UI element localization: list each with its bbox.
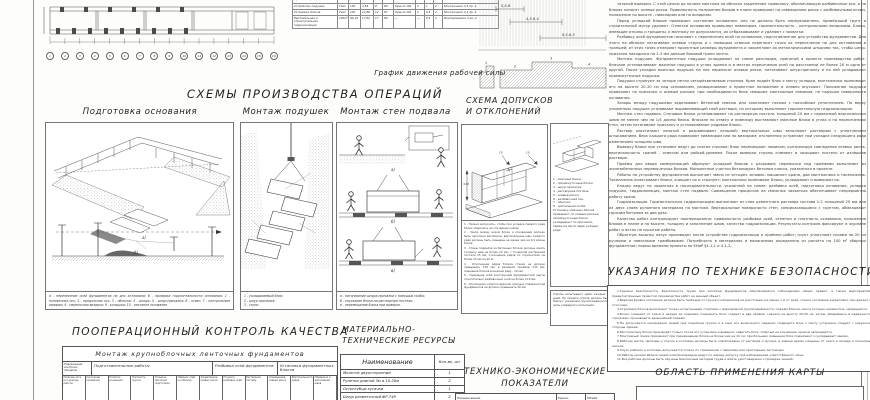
quality-table-title: Монтаж крупноблочных ленточных фундамент…: [62, 346, 338, 362]
quality-subcolumns-item: Вертикальность рядов: [291, 376, 314, 400]
technology-instructions-text-item: Подушки стропуют за четыре петли четырёх…: [609, 79, 866, 101]
tolerances-title: СХЕМА ДОПУСКОВ И ОТКЛОНЕНИЙ: [466, 95, 556, 117]
plan-axis-circles-item: 12: [210, 52, 218, 60]
quality-table: Монтаж крупноблочных ленточных фундамент…: [62, 346, 338, 400]
quality-subcolumns-item: Состояние основания: [86, 376, 109, 400]
technology-instructions-text-item: Выверку блока при установке ведут до сня…: [609, 145, 866, 162]
table-row: Молоток двухсторонний1: [341, 370, 465, 378]
tolerance-dim-3: 10: [499, 151, 503, 155]
tolerances-drawing: ±10 15 10: [462, 125, 545, 220]
table-cell: 100м²: [338, 16, 349, 29]
quality-subcolumns-item: Толщина песчаной подготовки: [154, 376, 177, 400]
plan-axis-circles-item: 9: [165, 52, 173, 60]
section-mark-1: 1: [485, 61, 487, 65]
table-row: Острогубцы кусачки1: [341, 385, 465, 393]
block-legend-list-item: Установку маячных блоков проверяют по ос…: [553, 209, 606, 232]
plan-axis-circles-item: 1: [46, 52, 54, 60]
technology-instructions-text-item: Раствор расстилают лопатой и разравниваю…: [609, 129, 866, 146]
panel1-caption: а - перенесение осей фундаментов на дно …: [46, 291, 233, 309]
plan-axis-circles-item: 13: [225, 52, 233, 60]
tech-econ-col-2: Едини-: [557, 394, 586, 400]
quality-subcolumns-item: Перевязка и заполнение швов: [314, 376, 337, 400]
plan-axis-circles-item: 2: [61, 52, 69, 60]
tolerances-notes-item: 6 - Отклонение отметок верхних опорных п…: [464, 283, 545, 290]
dim-label-2: 4,5-6,4: [526, 17, 539, 21]
tech-econ-table-partial: Наименование Едини- Объём: [455, 393, 615, 400]
scene-c-label: в): [391, 268, 395, 273]
tolerances-title-line1: СХЕМА ДОПУСКОВ: [466, 95, 556, 106]
table-cell: Вертикальная и горизонтальная гидроизоля…: [293, 16, 338, 29]
application-title: ОБЛАСТЬ ПРИМЕНЕНИЯ КАРТЫ: [630, 368, 850, 378]
technology-instructions-text: тальной выверки. С этой целью до начала …: [609, 2, 866, 260]
resources-col-qty: Кол-во, шт: [435, 355, 465, 370]
tolerances-notes-item: 1 - Нельзя допускать, чтобы при укладке …: [464, 223, 545, 230]
panel-tolerances: ±10 15 10 1 - Нельзя допускать, чтобы пр…: [461, 124, 548, 314]
quality-group-3: Установка фундаментных блоков: [278, 362, 337, 375]
table-row: Вертикальная и горизонтальная гидроизоля…: [293, 16, 499, 29]
technology-instructions-text-item: Гидроизоляция. Горизонтальную гидроизоля…: [609, 200, 866, 217]
table-cell: 1: [435, 385, 465, 393]
scene-b-label: б): [391, 219, 395, 224]
tech-econ-col-3: Объём: [586, 394, 614, 400]
table-row: Рулетки длиной 3м и 10-20м2: [341, 377, 465, 385]
technology-instructions-text-item: Перед укладкой блоков проверяют состояни…: [609, 19, 866, 36]
panel3-caption: а - натягивание шнура-причалки с помощью…: [337, 291, 457, 309]
quality-subcolumns-item: Плотность грунта: [131, 376, 154, 400]
table-cell: 1: [435, 370, 465, 378]
quality-subcolumns-item: Наличие акта на скрытые работы: [63, 376, 86, 400]
quality-title: ПООПЕРАЦИОННЫЙ КОНТРОЛЬ КАЧЕСТВА: [72, 326, 332, 338]
table-cell: Молоток двухсторонний: [341, 370, 435, 378]
operations-title: СХЕМЫ ПРОИЗВОДСТВА ОПЕРАЦИЙ: [160, 87, 470, 101]
technology-instructions-text-item: Монтаж подушек. Фундаментные подушки укл…: [609, 57, 866, 79]
technology-instructions-text-item: Кладку ведут на захватках в последовател…: [609, 184, 866, 201]
floor-plan-drawing: [36, 0, 292, 50]
labor-schedule-table: Подготовка основания (срезка недобора)10…: [292, 0, 499, 29]
quality-subcolumns-item: Точность разбивки осей: [223, 376, 246, 400]
plan-axis-circles-item: 14: [240, 52, 248, 60]
quality-group-2: Разбивка осей фундаментов: [213, 362, 278, 375]
technology-card-sheet: 12345678910111213141516 Подготовка основ…: [0, 0, 870, 400]
technology-instructions-text-item: Разбивку осей фундаментов начинают с пер…: [609, 35, 866, 57]
table-cell: 2: [435, 377, 465, 385]
quality-subcolumns: Наличие акта на скрытые работыСостояние …: [62, 376, 338, 400]
base-preparation-drawing: а) б): [46, 123, 231, 264]
panel-pad-installation: 1 - укладываемый блок; 2 - шнур-причалка…: [240, 122, 333, 310]
quality-group-1: Подготовительные работы: [92, 362, 213, 375]
sheet-left-border: [33, 0, 34, 400]
table-cell: —: [416, 16, 425, 29]
panel-base-preparation: а) б) а - перенесение осей фундаментов н…: [45, 122, 234, 310]
application-box: [636, 386, 864, 400]
section-mark-2: 2: [514, 65, 516, 69]
technology-instructions-text-item: тальной выверки. С этой целью до начала …: [609, 2, 866, 19]
plan-axis-circles-item: 8: [150, 52, 158, 60]
quality-table-groups: Подлежащие контролю процессы Подготовите…: [62, 362, 338, 376]
technology-instructions-text-item: Проёмы для ввода коммуникаций образуют у…: [609, 162, 866, 173]
plan-axis-circles-item: 6: [121, 52, 129, 60]
technology-instructions-text-item: Монтаж стен подвала. Стеновые блоки уста…: [609, 112, 866, 129]
block-corner-drawing: [551, 124, 606, 176]
plan-axis-circles-item: 10: [180, 52, 188, 60]
table-cell: 80: [383, 16, 394, 29]
tech-econ-title: ТЕХНИКО-ЭКОНОМИЧЕСКИЕ ПОКАЗАТЕЛИ: [462, 367, 608, 390]
scene-a-label: а): [391, 167, 395, 172]
panel1-title: Подготовка основания: [55, 107, 225, 117]
safety-instructions-box-item: 1.Техника безопасности. Безопасность тру…: [612, 289, 870, 298]
dim-label-1: 5,5-6: [501, 4, 511, 8]
safety-instructions-box-item: 2.Верхняя бровка котлована должна быть с…: [612, 298, 870, 307]
plan-axis-circles-item: 16: [270, 52, 278, 60]
resources-title: МАТЕРИАЛЬНО-ТЕХНИЧЕСКИЕ РЕСУРСЫ: [342, 324, 470, 346]
panel2-title: Монтаж подушек: [240, 107, 332, 117]
safety-instructions-box-item: 5.Не допускается нахождение людей под по…: [612, 321, 870, 330]
technology-instructions-text-item: Обратную засыпку пазух производят после …: [609, 233, 866, 250]
tolerances-title-line2: И ОТКЛОНЕНИЙ: [466, 106, 556, 117]
table-cell: 60,16: [349, 16, 361, 29]
tolerances-notes-item: 4 - Отклонение рядов блоков стенки не до…: [464, 263, 545, 274]
safety-instructions-box: 1.Техника безопасности. Безопасность тру…: [607, 285, 870, 372]
tolerances-notes: 1 - Нельзя допускать, чтобы при укладке …: [462, 220, 547, 293]
pad-installation-drawing: [241, 123, 330, 269]
table-cell: 0,5: [425, 16, 434, 29]
technology-instructions-text-item: Работы по устройству фундаментов выполня…: [609, 173, 866, 184]
safety-instructions-box-item: 8.Рабочие места, проходы и спуски в котл…: [612, 339, 870, 348]
scene-b-label: б): [134, 250, 138, 255]
resources-table: Наименование Кол-во, шт Молоток двухстор…: [340, 354, 465, 400]
tolerance-dim-2: 15: [526, 151, 530, 155]
plan-axis-circles-item: 3: [76, 52, 84, 60]
tech-econ-col-1: Наименование: [456, 394, 557, 400]
block-legend-list: 1 - маячные блоки;2 - промежуточные блок…: [551, 176, 608, 235]
table-cell: Острогубцы кусачки: [341, 385, 435, 393]
plan-axis-circles-item: 5: [106, 52, 114, 60]
quality-subcolumns-item: Растворная постель: [246, 376, 269, 400]
tolerances-notes-item: 5 - Смещение осей конструкций фундаментн…: [464, 274, 545, 281]
tolerance-dim-1: ±10: [463, 182, 469, 186]
table-cell: 17,62: [361, 16, 374, 29]
sling-note-box: Стропы испытывают через каждые 10 дней. …: [550, 290, 613, 326]
plan-axis-circles-item: 11: [195, 52, 203, 60]
quality-subcolumns-item: Отметки основания: [109, 376, 132, 400]
tolerances-notes-item: 2 - Зазор между низом блока и основанием…: [464, 231, 545, 245]
quality-left-column: Подлежащие контролю процессы: [63, 362, 92, 375]
technology-instructions-text-item: Качество работ контролируют пооперационн…: [609, 217, 866, 234]
table-cell: —: [394, 16, 416, 29]
quality-subcolumns-item: Закрепление осевых рисок: [200, 376, 223, 400]
table-cell: 17: [374, 16, 383, 29]
safety-instructions-box-item: 4.Блоки очищают от грязи и наледи до под…: [612, 312, 870, 321]
technology-instructions-text-item: Зазоры между подушками заделывают бетонн…: [609, 101, 866, 112]
work-sections-diagram: 5,5-6 4,5-6,4 8,5-6,5 1 2 3 4: [476, 0, 610, 92]
scene-a-label: а): [142, 235, 146, 240]
panel2-caption: 1 - укладываемый блок; 2 - шнур-причалка…: [241, 291, 332, 309]
safety-instructions-box-item: 11.Все рабочие должны быть обучены безоп…: [612, 357, 870, 362]
panel-block-legend: 1 - маячные блоки;2 - промежуточные блок…: [550, 123, 609, 287]
safety-title: УКАЗАНИЯ ПО ТЕХНИКЕ БЕЗОПАСНОСТИ: [608, 266, 868, 278]
table-cell: Шнур разметочный ФР-749: [341, 393, 435, 400]
tolerances-notes-item: 3 - Стены подвалов из бетонных блоков до…: [464, 247, 545, 261]
plan-axis-circles: 12345678910111213141516: [46, 52, 278, 60]
plan-axis-circles-item: 15: [255, 52, 263, 60]
panel3-title: Монтаж стен подвала: [333, 107, 458, 117]
section-mark-3: 3: [550, 57, 552, 61]
wall-installation-drawing: а) б): [337, 123, 455, 273]
resources-col-name: Наименование: [341, 355, 435, 370]
table-cell: 2: [434, 16, 443, 29]
quality-subcolumns-item: Совмещение осевых рисок: [268, 376, 291, 400]
labor-chart-caption: График движения рабочей силы: [360, 69, 520, 77]
table-cell: Рулетки длиной 3м и 10-20м: [341, 377, 435, 385]
plan-axis-circles-item: 7: [136, 52, 144, 60]
quality-subcolumns-item: Перенос осей на обноску: [177, 376, 200, 400]
plan-axis-circles-item: 4: [91, 52, 99, 60]
table-row: Шнур разметочный ФР-7492: [341, 393, 465, 400]
section-mark-4: 4: [588, 63, 590, 67]
panel-wall-installation: а) б): [336, 122, 458, 310]
dim-label-3: 8,5-6,5: [562, 33, 575, 37]
